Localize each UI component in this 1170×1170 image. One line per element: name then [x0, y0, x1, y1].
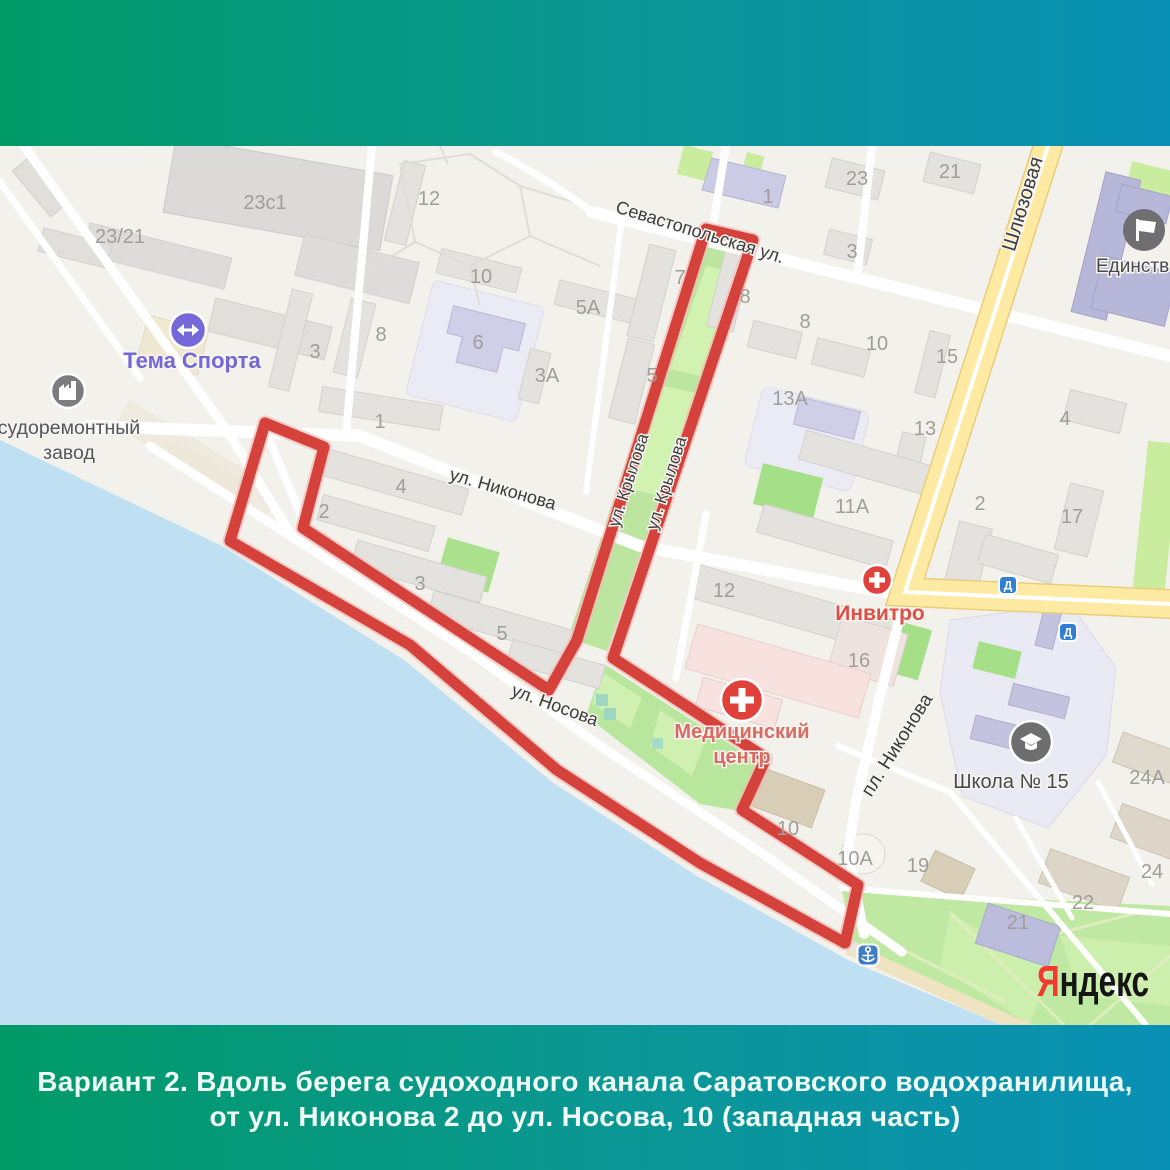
- svg-text:24А: 24А: [1129, 767, 1165, 789]
- svg-text:21: 21: [939, 161, 961, 183]
- svg-text:3: 3: [846, 241, 857, 263]
- svg-text:21: 21: [1007, 912, 1029, 934]
- svg-text:24: 24: [1141, 861, 1163, 883]
- svg-text:6: 6: [472, 332, 483, 354]
- svg-text:Единств: Единств: [1096, 256, 1169, 277]
- svg-text:12: 12: [418, 188, 440, 210]
- svg-text:Тема Спорта: Тема Спорта: [123, 348, 261, 373]
- svg-text:Школа № 15: Школа № 15: [953, 771, 1069, 793]
- svg-text:10: 10: [777, 818, 799, 840]
- svg-text:Д: Д: [1004, 579, 1013, 593]
- svg-text:3А: 3А: [535, 365, 560, 387]
- svg-text:центр: центр: [713, 746, 771, 768]
- svg-text:23/21: 23/21: [95, 226, 145, 248]
- svg-text:завод: завод: [43, 442, 95, 464]
- svg-text:2: 2: [318, 501, 329, 523]
- svg-text:5: 5: [646, 365, 657, 387]
- svg-text:Яндекс: Яндекс: [1037, 957, 1149, 1006]
- svg-text:12: 12: [713, 580, 735, 602]
- svg-text:10: 10: [470, 266, 492, 288]
- svg-text:8: 8: [375, 324, 386, 346]
- svg-text:16: 16: [848, 650, 870, 672]
- svg-text:13: 13: [914, 418, 936, 440]
- svg-text:3: 3: [309, 341, 320, 363]
- svg-text:4: 4: [1059, 408, 1070, 430]
- svg-text:23: 23: [846, 168, 868, 190]
- svg-text:7: 7: [674, 267, 685, 289]
- svg-text:3: 3: [414, 573, 425, 595]
- svg-text:22: 22: [1072, 892, 1094, 914]
- svg-text:11А: 11А: [835, 496, 870, 518]
- svg-text:10А: 10А: [837, 848, 873, 870]
- svg-text:2: 2: [974, 493, 985, 515]
- svg-text:19: 19: [907, 855, 929, 877]
- svg-text:10: 10: [866, 333, 888, 355]
- svg-text:Инвитро: Инвитро: [835, 602, 925, 625]
- svg-text:1: 1: [374, 411, 385, 433]
- svg-text:5А: 5А: [576, 297, 601, 319]
- svg-text:Медицинский: Медицинский: [674, 721, 809, 743]
- svg-text:15: 15: [936, 346, 958, 368]
- svg-text:17: 17: [1061, 506, 1083, 528]
- svg-text:13А: 13А: [772, 388, 808, 410]
- svg-text:8: 8: [739, 286, 750, 308]
- svg-text:Д: Д: [1064, 626, 1073, 640]
- svg-text:23с1: 23с1: [243, 192, 286, 214]
- svg-text:1: 1: [762, 186, 773, 208]
- svg-text:5: 5: [496, 623, 507, 645]
- svg-text:4: 4: [395, 476, 406, 498]
- svg-text:судоремонтный: судоремонтный: [0, 417, 140, 439]
- svg-text:8: 8: [799, 311, 810, 333]
